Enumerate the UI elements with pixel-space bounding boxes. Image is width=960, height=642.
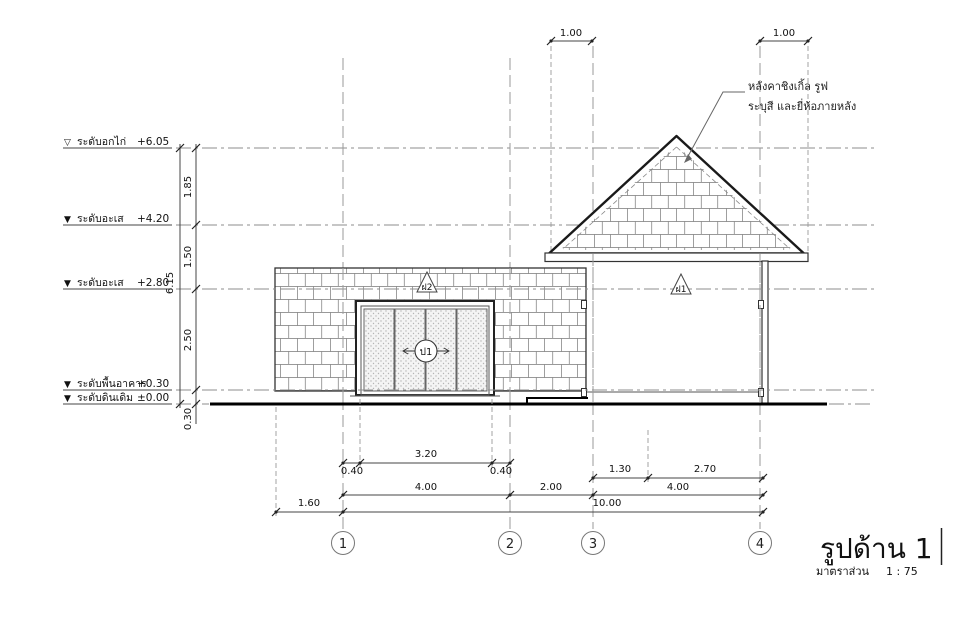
roof-shingle-pattern	[549, 136, 805, 256]
dim-label: 2.00	[540, 482, 562, 493]
dim-label-total-height: 6.15	[165, 272, 176, 294]
level-annotations: ▽ ระดับอกไก่ +6.05 ▼ ระดับอะเส +4.20 ▼ ร…	[63, 135, 172, 404]
roof-annotation: หลังคาชิงเกิ้ล รูฟ ระบุสี และยี่ห้อภายหล…	[684, 78, 856, 163]
level-value: +4.20	[137, 213, 169, 225]
dim-label: 1.50	[183, 246, 194, 268]
post-clip	[582, 301, 587, 309]
wall-tag-porch-label: ฝ1	[676, 285, 687, 295]
top-dimensions: 1.00 1.00	[551, 28, 808, 41]
elevation-drawing-canvas: ป1 ฝ2 ฝ1 หลังคาชิงเกิ้ล รูฟ ระบุสี และยี…	[0, 0, 960, 642]
level-name: ระดับอะเส	[77, 277, 124, 289]
grid-bubble-label: 1	[339, 537, 347, 552]
dim-label: 0.40	[341, 466, 363, 477]
ground	[210, 398, 827, 404]
level-value: ±0.00	[137, 392, 169, 404]
dim-label: 1.30	[609, 464, 631, 475]
grid-bubbles: 1 2 3 4	[332, 532, 772, 555]
drawing-scale-value: 1 : 75	[886, 565, 918, 578]
dim-label: 1.00	[773, 28, 795, 39]
level-marker-icon: ▼	[64, 394, 71, 404]
porch-post	[762, 261, 768, 404]
roof-note-line2: ระบุสี และยี่ห้อภายหลัง	[748, 98, 856, 113]
level-marker-icon: ▼	[64, 279, 71, 289]
dim-label: 10.00	[593, 498, 622, 509]
bottom-dimensions: 0.40 3.20 0.40 1.30 2.70 4.00 2.00 4.00 …	[276, 399, 763, 516]
grid-bubble-label: 4	[756, 537, 764, 552]
dim-label: 3.20	[415, 449, 437, 460]
dim-label: 2.70	[694, 464, 716, 475]
level-name: ระดับอะเส	[77, 213, 124, 225]
level-marker-icon: ▼	[64, 215, 71, 225]
leader-line	[686, 92, 745, 160]
level-value: +6.05	[137, 136, 169, 148]
level-name: ระดับดินเดิม	[77, 392, 133, 404]
roof-note-line1: หลังคาชิงเกิ้ล รูฟ	[748, 78, 828, 93]
wall-tag-porch: ฝ1	[671, 274, 691, 295]
dim-label: 1.60	[298, 498, 320, 509]
dim-label: 4.00	[667, 482, 689, 493]
dim-label: 0.40	[490, 466, 512, 477]
dim-label: 1.85	[183, 176, 194, 198]
elevation-drawing-sheet: ป1 ฝ2 ฝ1 หลังคาชิงเกิ้ล รูฟ ระบุสี และยี…	[0, 0, 960, 642]
vertical-dimensions: 6.15 1.85 1.50 2.50 0.30	[165, 144, 196, 430]
door-tag-label: ป1	[420, 347, 433, 358]
hip-roof	[545, 136, 808, 262]
sliding-door: ป1	[350, 301, 500, 396]
level-marker-icon: ▽	[64, 138, 71, 148]
roof-fascia	[545, 253, 808, 262]
post-clip	[759, 301, 764, 309]
level-marker-icon: ▼	[64, 380, 71, 390]
porch-structure	[582, 261, 769, 404]
grid-bubble-label: 2	[506, 537, 514, 552]
level-value: +0.30	[137, 378, 169, 390]
grid-bubble-label: 3	[589, 537, 597, 552]
title-block: รูปด้าน 1 มาตราส่วน 1 : 75	[816, 528, 942, 578]
door-panel	[457, 309, 487, 391]
dim-label: 0.30	[183, 408, 194, 430]
level-name: ระดับอกไก่	[77, 135, 126, 148]
drawing-title: รูปด้าน 1	[820, 532, 933, 566]
door-panel	[364, 309, 394, 391]
dim-label: 4.00	[415, 482, 437, 493]
wall-tag-front-label: ฝ2	[422, 283, 433, 293]
dim-label: 2.50	[183, 329, 194, 351]
drawing-scale-label: มาตราส่วน	[816, 565, 870, 578]
dim-label: 1.00	[560, 28, 582, 39]
